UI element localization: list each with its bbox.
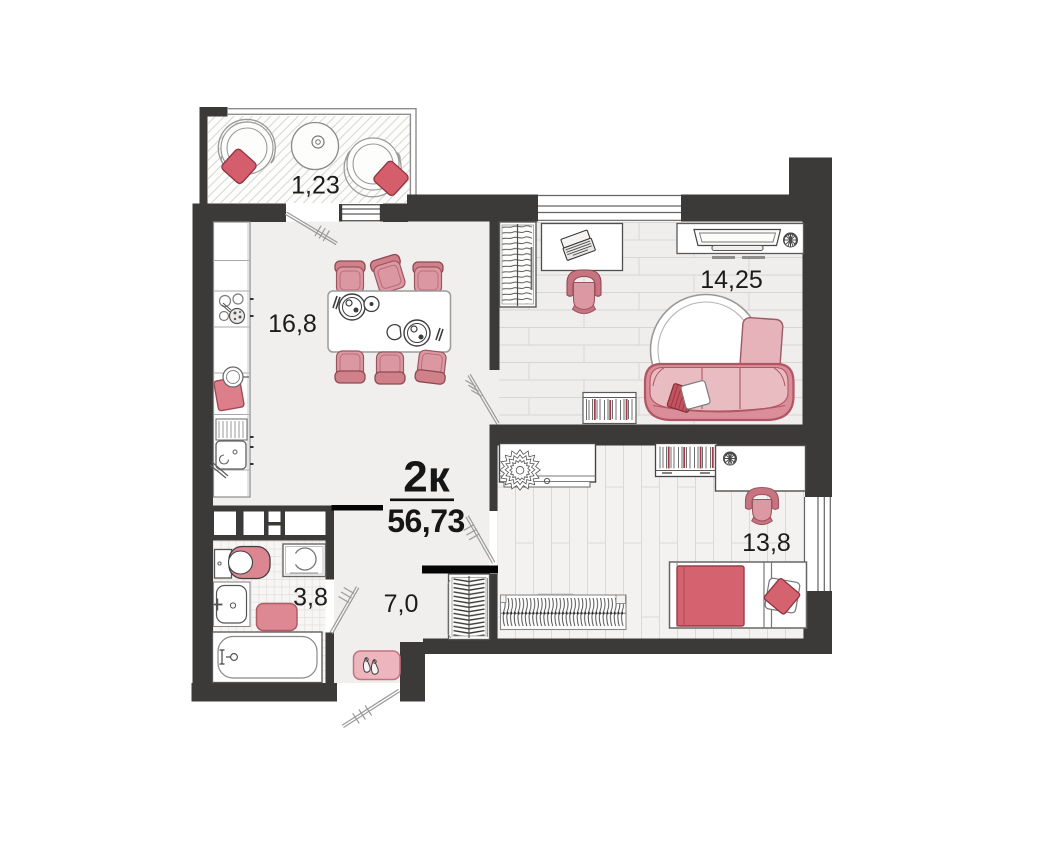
svg-text:2к: 2к (403, 453, 450, 502)
svg-text:16,8: 16,8 (268, 310, 317, 338)
svg-text:56,73: 56,73 (387, 503, 465, 539)
svg-text:7,0: 7,0 (384, 590, 419, 618)
svg-text:14,25: 14,25 (700, 266, 763, 294)
svg-text:3,8: 3,8 (293, 584, 328, 612)
svg-text:13,8: 13,8 (742, 529, 791, 557)
svg-text:1,23: 1,23 (291, 172, 340, 200)
